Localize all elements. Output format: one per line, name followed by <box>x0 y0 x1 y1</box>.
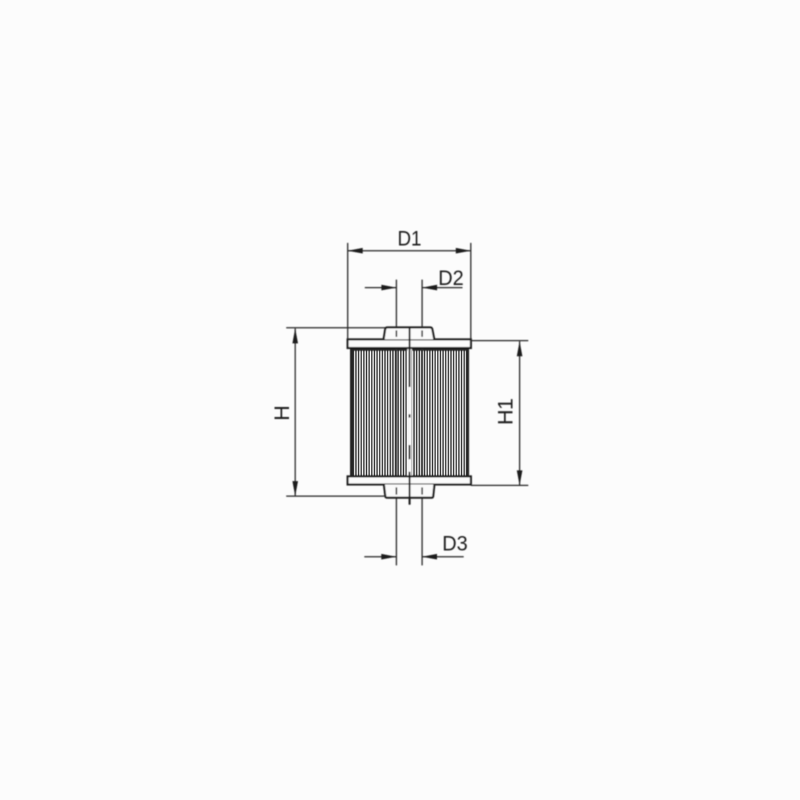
svg-text:D2: D2 <box>438 266 464 290</box>
svg-text:H: H <box>270 405 294 421</box>
svg-text:D1: D1 <box>398 226 422 250</box>
svg-text:H1: H1 <box>494 399 518 425</box>
svg-text:D3: D3 <box>442 532 468 556</box>
